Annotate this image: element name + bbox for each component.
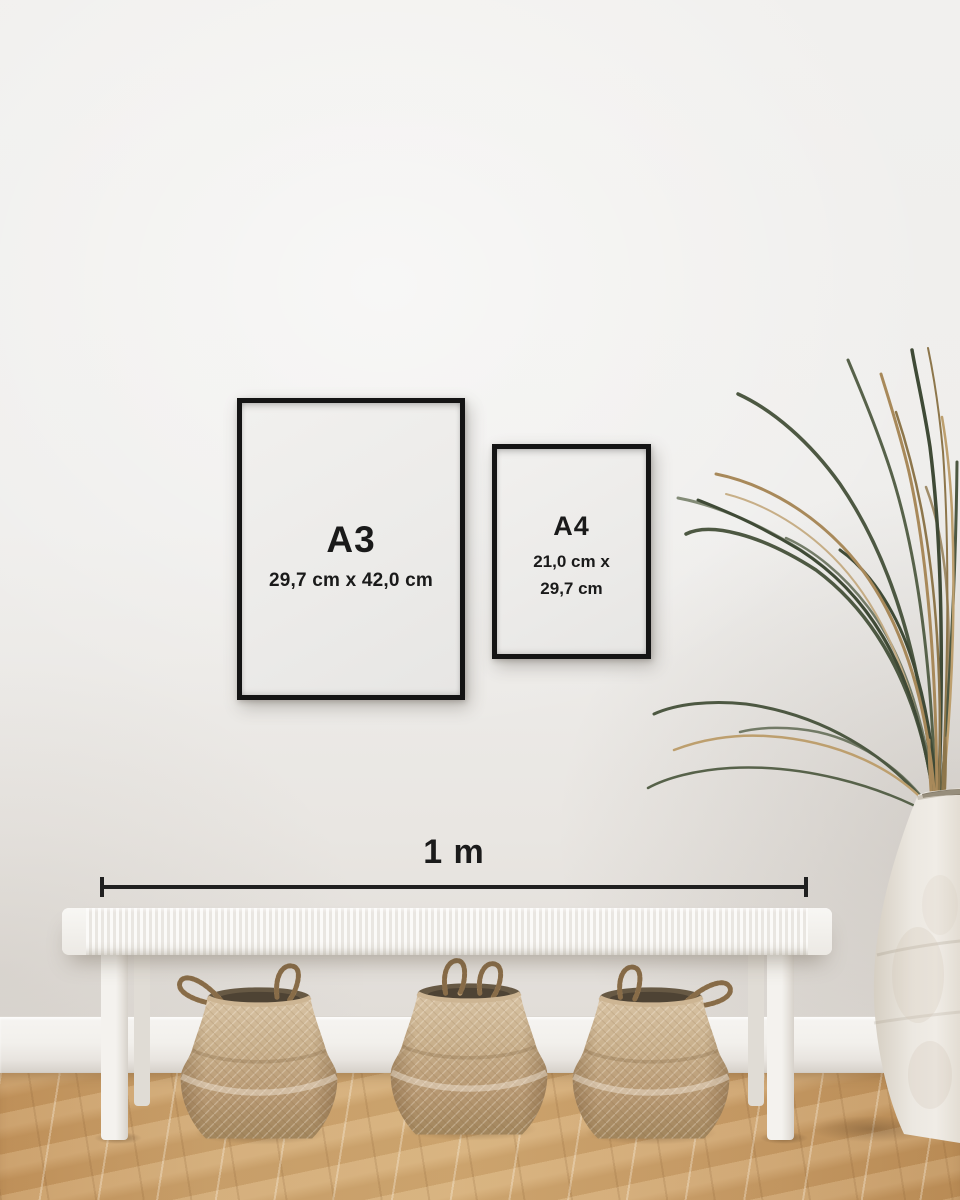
frame-a4-size-label: A4 [553,511,590,542]
measure-ruler-tick-right [804,877,808,897]
seagrass-basket-left [169,961,349,1146]
basket-body [573,997,730,1138]
seagrass-basket-center [379,957,559,1142]
basket-body [181,997,338,1138]
measure-ruler: 1 m [100,830,808,889]
frame-a3: A3 29,7 cm x 42,0 cm [237,398,465,700]
seagrass-basket-right [561,961,741,1146]
measure-ruler-line [100,885,808,889]
vase [860,785,960,1145]
frame-a3-mat: A3 29,7 cm x 42,0 cm [242,403,460,695]
palm-fronds [648,348,957,817]
frame-a4-dimensions: 21,0 cm x 29,7 cm [533,549,610,602]
frame-a4-mat: A4 21,0 cm x 29,7 cm [497,449,646,654]
bench-leg-rear-right [748,950,764,1106]
basket-body [391,993,548,1134]
bench-leg-front-right [767,950,794,1140]
frame-a3-size-label: A3 [326,519,375,561]
bench-leg-front-left [101,950,128,1140]
bench-leg-rear-left [134,950,150,1106]
frame-a4: A4 21,0 cm x 29,7 cm [492,444,651,659]
measure-ruler-tick-left [100,877,104,897]
dried-palm-plant [638,312,960,834]
bench-seat [62,908,832,955]
room-scene: A3 29,7 cm x 42,0 cm A4 21,0 cm x 29,7 c… [0,0,960,1200]
measure-ruler-label: 1 m [100,830,808,874]
frame-a3-dimensions: 29,7 cm x 42,0 cm [269,570,433,592]
